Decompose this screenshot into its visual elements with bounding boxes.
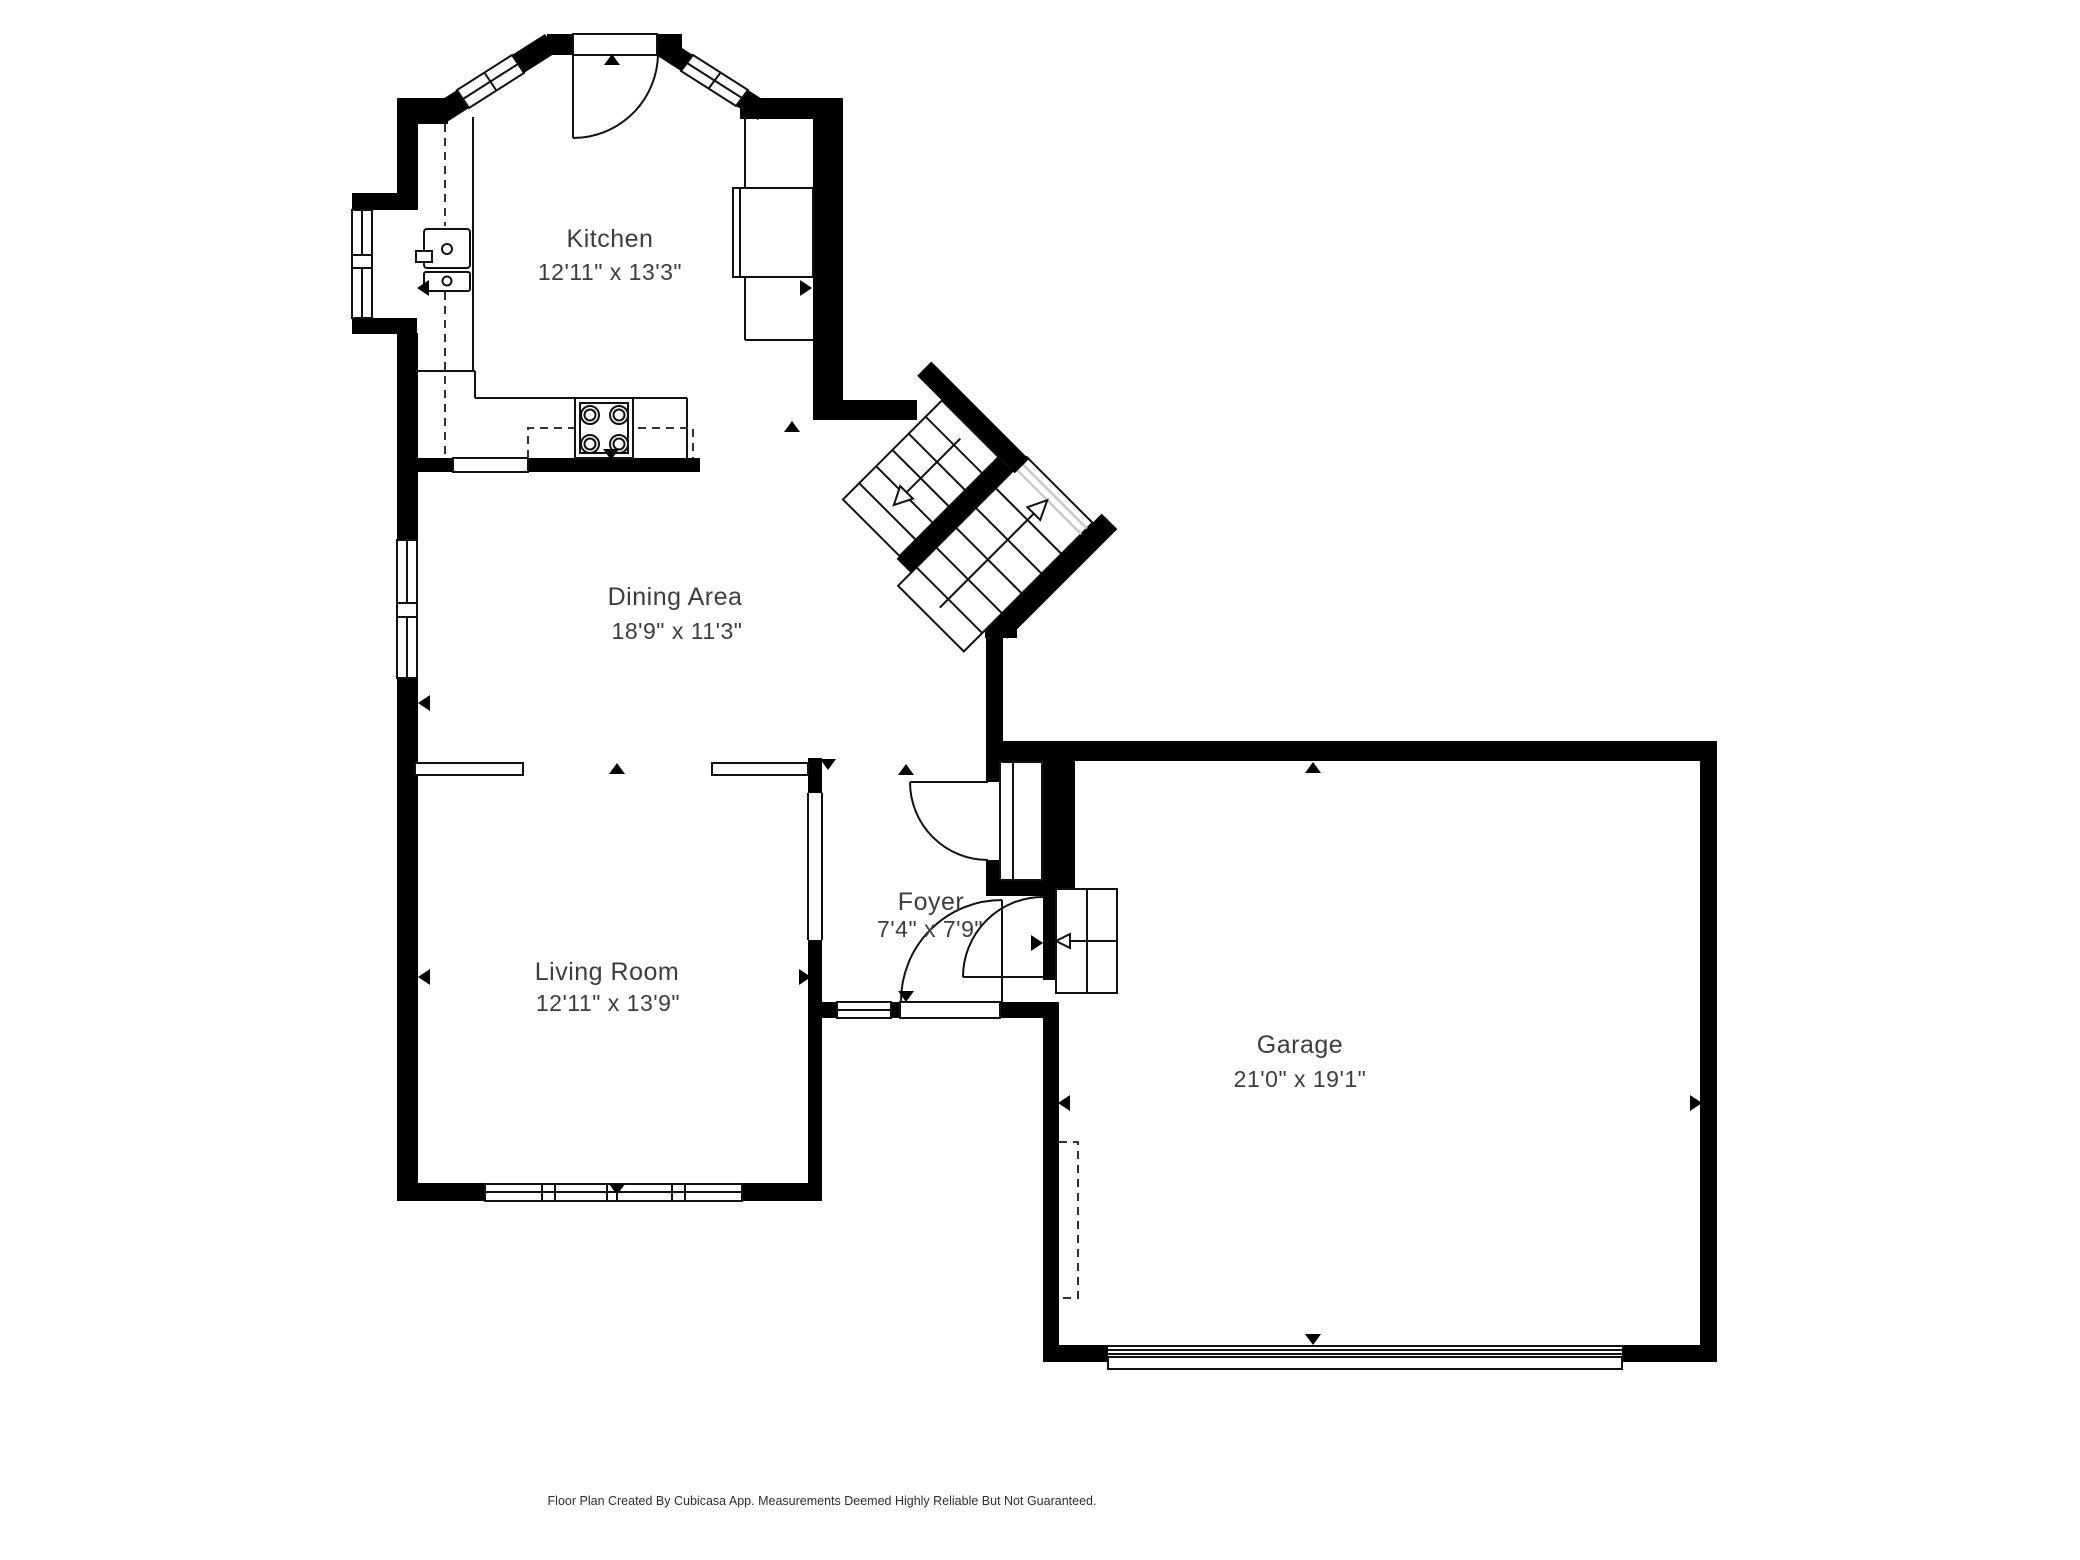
staircase xyxy=(803,352,1118,667)
kitchen-exterior-door xyxy=(573,53,658,138)
bay-window-right-icon xyxy=(681,55,748,106)
dining-living-header-right xyxy=(712,763,808,775)
bay-window-left-icon xyxy=(457,55,524,108)
foyer-label: Foyer xyxy=(898,888,964,916)
upper-cabinets-dashed xyxy=(445,124,693,458)
dining-label: Dining Area xyxy=(608,583,743,611)
garage-entry-door-frame xyxy=(1000,762,1042,880)
entry-steps-icon xyxy=(1056,889,1117,993)
foyer-dims: 7'4" x 7'9" xyxy=(877,916,983,942)
living-dims: 12'11" x 13'9" xyxy=(536,990,680,1016)
dining-dims: 18'9" x 11'3" xyxy=(612,618,743,644)
kitchen-dims: 12'11" x 13'3" xyxy=(538,259,682,285)
garage-utility-dashed xyxy=(1059,1142,1078,1298)
kitchen-pass-opening xyxy=(453,458,528,472)
kitchen-label: Kitchen xyxy=(567,225,654,253)
sink-bay-window-icon xyxy=(352,210,372,318)
garage-label: Garage xyxy=(1257,1031,1343,1059)
foyer-upper-door xyxy=(910,782,988,860)
kitchen-fixtures xyxy=(416,117,813,458)
dining-window-icon xyxy=(397,540,417,678)
garage-door-icon xyxy=(1108,1346,1622,1369)
foyer-door-threshold xyxy=(900,1002,1000,1018)
living-label: Living Room xyxy=(535,958,679,986)
garage-dims: 21'0" x 19'1" xyxy=(1234,1066,1367,1092)
fridge-icon xyxy=(733,188,813,277)
dining-living-header-left xyxy=(415,763,523,775)
walls xyxy=(352,34,1717,1362)
floor-plan: Kitchen 12'11" x 13'3" Dining Area 18'9"… xyxy=(0,0,2080,1560)
footer-disclaimer: Floor Plan Created By Cubicasa App. Meas… xyxy=(548,1494,1097,1508)
sink-icon xyxy=(416,229,470,291)
room-labels: Kitchen 12'11" x 13'3" Dining Area 18'9"… xyxy=(535,225,1367,1092)
kitchen-door-threshold xyxy=(573,34,657,55)
foyer-window-icon xyxy=(837,1002,891,1018)
